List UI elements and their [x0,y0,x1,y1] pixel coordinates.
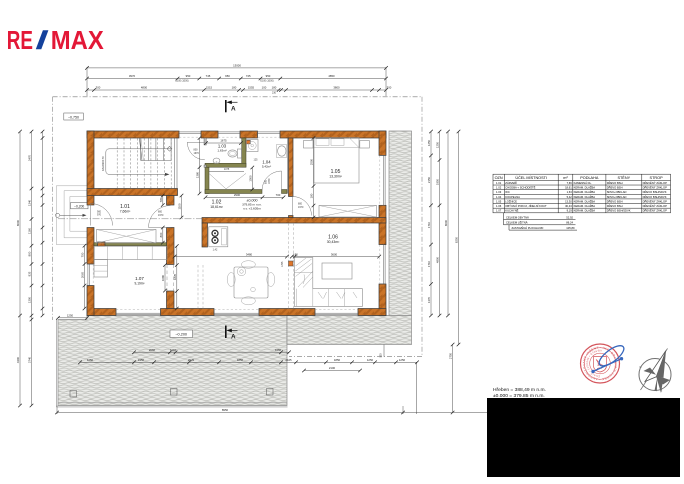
svg-text:1500: 1500 [248,175,252,182]
svg-text:1340: 1340 [28,199,32,206]
svg-text:2500: 2500 [310,158,314,165]
svg-text:125: 125 [254,159,259,162]
svg-text:1.05: 1.05 [496,199,502,203]
svg-text:13,30: 13,30 [565,199,572,203]
svg-text:700: 700 [276,193,281,197]
svg-text:E100 (1000): E100 (1000) [260,80,273,83]
svg-text:8250: 8250 [455,236,459,243]
svg-text:13,30m²: 13,30m² [329,175,342,179]
svg-text:3600: 3600 [331,252,338,256]
svg-text:s.v. +2,605m: s.v. +2,605m [243,207,261,211]
svg-text:5,42: 5,42 [567,195,573,199]
svg-text:ÚČEL MÍSTNOSTI: ÚČEL MÍSTNOSTI [515,175,547,180]
svg-text:745: 745 [246,74,251,78]
svg-text:1.07: 1.07 [496,209,502,213]
svg-text:1250: 1250 [367,358,374,362]
svg-text:N: N [640,365,642,369]
svg-text:4850: 4850 [328,74,335,78]
svg-text:8950: 8950 [222,408,229,412]
svg-text:52,92: 52,92 [566,216,573,220]
svg-text:2900: 2900 [234,193,241,197]
svg-text:9,19m²: 9,19m² [135,281,145,285]
svg-text:86,24: 86,24 [566,221,573,225]
svg-text:8000: 8000 [16,219,20,226]
svg-text:PODLAHA: PODLAHA [580,176,599,180]
svg-text:MAX: MAX [51,27,104,55]
svg-text:RE: RE [7,27,33,55]
svg-text:300: 300 [387,86,392,90]
svg-text:2470: 2470 [28,154,32,161]
svg-text:780: 780 [159,197,163,202]
svg-text:1950: 1950 [436,178,440,185]
svg-text:800: 800 [159,232,163,237]
svg-text:1555: 1555 [248,86,255,90]
svg-text:1515: 1515 [206,86,213,90]
svg-text:4300: 4300 [16,356,20,363]
svg-text:SDVK+OBKLAD: SDVK+OBKLAD [607,190,627,194]
svg-text:1,42: 1,42 [213,249,218,252]
svg-text:3480: 3480 [246,252,253,256]
svg-text:180: 180 [232,86,237,90]
svg-text:CELKEM OBYTNÁ: CELKEM OBYTNÁ [506,216,529,220]
svg-text:935: 935 [28,271,32,276]
svg-text:18,61m²: 18,61m² [210,205,223,209]
svg-text:2750: 2750 [449,352,453,359]
svg-text:STĚNY: STĚNY [617,175,630,180]
svg-text:1250: 1250 [87,358,94,362]
svg-text:1950: 1950 [138,358,145,362]
svg-text:WC: WC [505,190,510,194]
svg-text:4800: 4800 [436,256,440,263]
svg-text:1250: 1250 [399,358,406,362]
svg-text:1.07: 1.07 [135,276,144,281]
svg-text:1.01: 1.01 [496,181,502,185]
svg-text:1370: 1370 [427,296,431,303]
svg-text:105,89: 105,89 [566,226,575,230]
svg-text:500: 500 [380,353,383,358]
svg-text:7,66: 7,66 [567,181,573,185]
svg-text:1710: 1710 [427,260,431,267]
svg-text:13000: 13000 [233,64,241,68]
svg-text:1.03: 1.03 [496,190,502,194]
svg-text:970: 970 [97,214,102,217]
svg-text:1970: 1970 [298,206,304,209]
svg-text:1250: 1250 [436,141,440,148]
svg-text:Hřeben = 388,49 m n.m.: Hřeben = 388,49 m n.m. [493,387,546,393]
svg-text:745: 745 [206,74,211,78]
svg-text:2425: 2425 [285,358,292,362]
svg-text:1850: 1850 [334,358,341,362]
svg-text:1970: 1970 [268,178,271,184]
svg-text:1380: 1380 [196,171,200,178]
svg-text:180: 180 [293,252,298,256]
svg-text:1080: 1080 [161,274,165,281]
svg-text:m²: m² [563,176,568,180]
svg-text:OBÝVACÍ POKOJ, JÍDELNÍ KOUT: OBÝVACÍ POKOJ, JÍDELNÍ KOUT [505,204,547,208]
svg-text:8000: 8000 [444,219,448,226]
svg-text:−0,200: −0,200 [74,204,84,208]
svg-text:950: 950 [186,74,191,78]
svg-text:1100: 1100 [178,203,182,209]
svg-text:2060: 2060 [149,348,156,352]
svg-text:9,19: 9,19 [567,209,573,213]
svg-text:7,66m²: 7,66m² [120,210,131,214]
svg-text:2150: 2150 [427,176,431,183]
svg-text:950: 950 [225,74,230,78]
svg-text:KOUPELNA: KOUPELNA [505,195,520,199]
svg-text:3970: 3970 [129,74,136,78]
svg-text:230: 230 [272,92,277,95]
svg-text:18x290/170: 18x290/170 [101,156,105,171]
svg-text:E100 (1000): E100 (1000) [175,80,188,83]
svg-text:750: 750 [81,252,85,257]
svg-text:1710: 1710 [427,221,431,228]
svg-text:180: 180 [310,193,314,198]
svg-text:−0,200: −0,200 [175,333,187,337]
svg-text:300: 300 [96,86,101,90]
svg-text:1,63m²: 1,63m² [217,149,226,153]
svg-text:1475: 1475 [224,168,230,171]
svg-text:18,61: 18,61 [565,186,572,190]
svg-text:3740: 3740 [28,356,32,363]
svg-text:1.06: 1.06 [496,204,502,208]
svg-text:2100: 2100 [329,366,336,370]
svg-text:4800: 4800 [141,86,148,90]
svg-text:1970: 1970 [158,214,164,217]
svg-text:180: 180 [272,86,277,90]
svg-text:1250: 1250 [427,139,431,146]
svg-text:1.02: 1.02 [496,186,502,190]
svg-text:3800: 3800 [333,86,340,90]
svg-text:950: 950 [266,74,271,78]
svg-text:1140: 1140 [170,348,176,352]
svg-text:30,43: 30,43 [565,204,572,208]
svg-text:1.04: 1.04 [496,195,502,199]
svg-text:SDVK+OBKLAD: SDVK+OBKLAD [607,195,627,199]
svg-text:1675: 1675 [220,139,227,143]
svg-text:1300: 1300 [28,296,32,303]
svg-text:4460: 4460 [275,348,282,352]
svg-text:800: 800 [28,251,32,256]
svg-text:1,63: 1,63 [567,190,573,194]
svg-text:1970: 1970 [194,152,200,155]
svg-text:100: 100 [262,86,267,90]
svg-text:1835: 1835 [173,273,177,280]
svg-text:1160: 1160 [28,228,32,234]
svg-text:1250: 1250 [67,314,74,318]
svg-text:STROP: STROP [650,176,664,180]
svg-text:2065: 2065 [81,271,85,278]
svg-text:KAMENNÁ DL.: KAMENNÁ DL. [574,181,592,185]
svg-text:A: A [231,105,236,112]
svg-text:A: A [231,333,236,340]
svg-text:1705: 1705 [281,261,284,267]
svg-text:1850: 1850 [237,358,244,362]
svg-text:30,43m²: 30,43m² [327,240,340,244]
svg-text:2025: 2025 [188,358,195,362]
svg-text:5,42m²: 5,42m² [262,164,271,168]
svg-text:S: S [661,389,663,393]
svg-text:OZN: OZN [495,176,503,180]
svg-text:−0,750: −0,750 [68,115,79,119]
